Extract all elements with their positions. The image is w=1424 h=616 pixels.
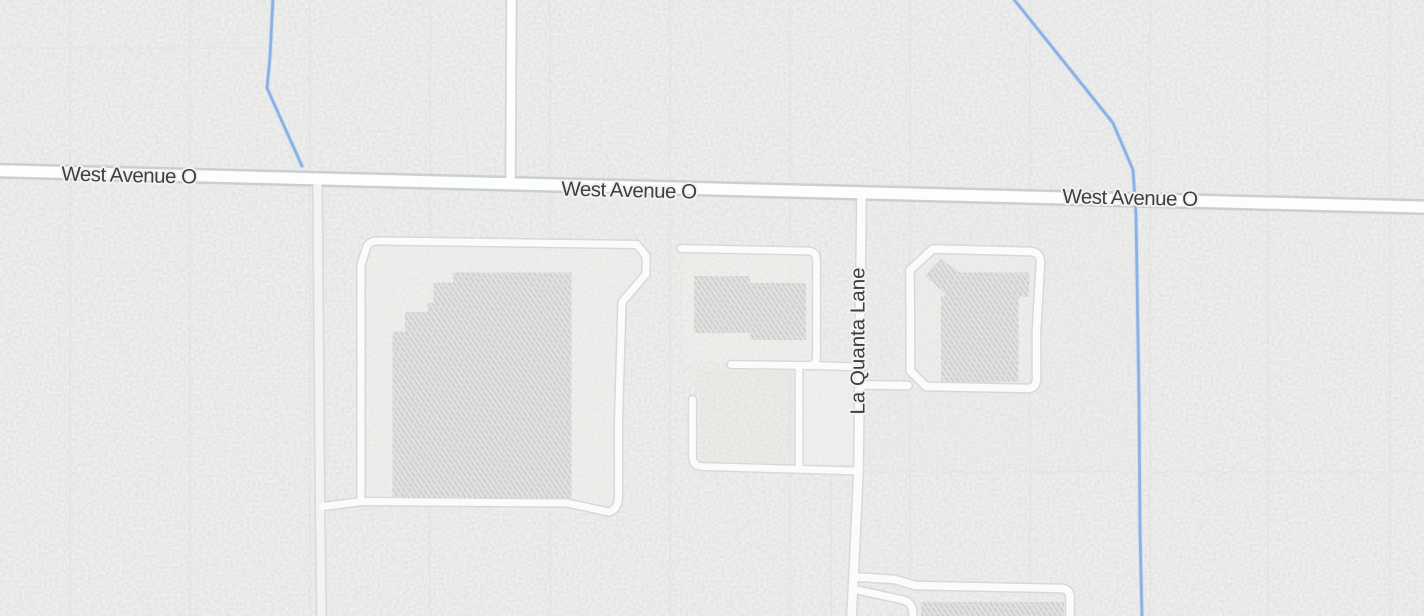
svg-text:West Avenue O: West Avenue O bbox=[61, 162, 197, 188]
svg-text:West Avenue O: West Avenue O bbox=[561, 177, 697, 203]
svg-text:West Avenue O: West Avenue O bbox=[1062, 185, 1198, 211]
svg-text:La Quanta Lane: La Quanta Lane bbox=[847, 267, 870, 414]
